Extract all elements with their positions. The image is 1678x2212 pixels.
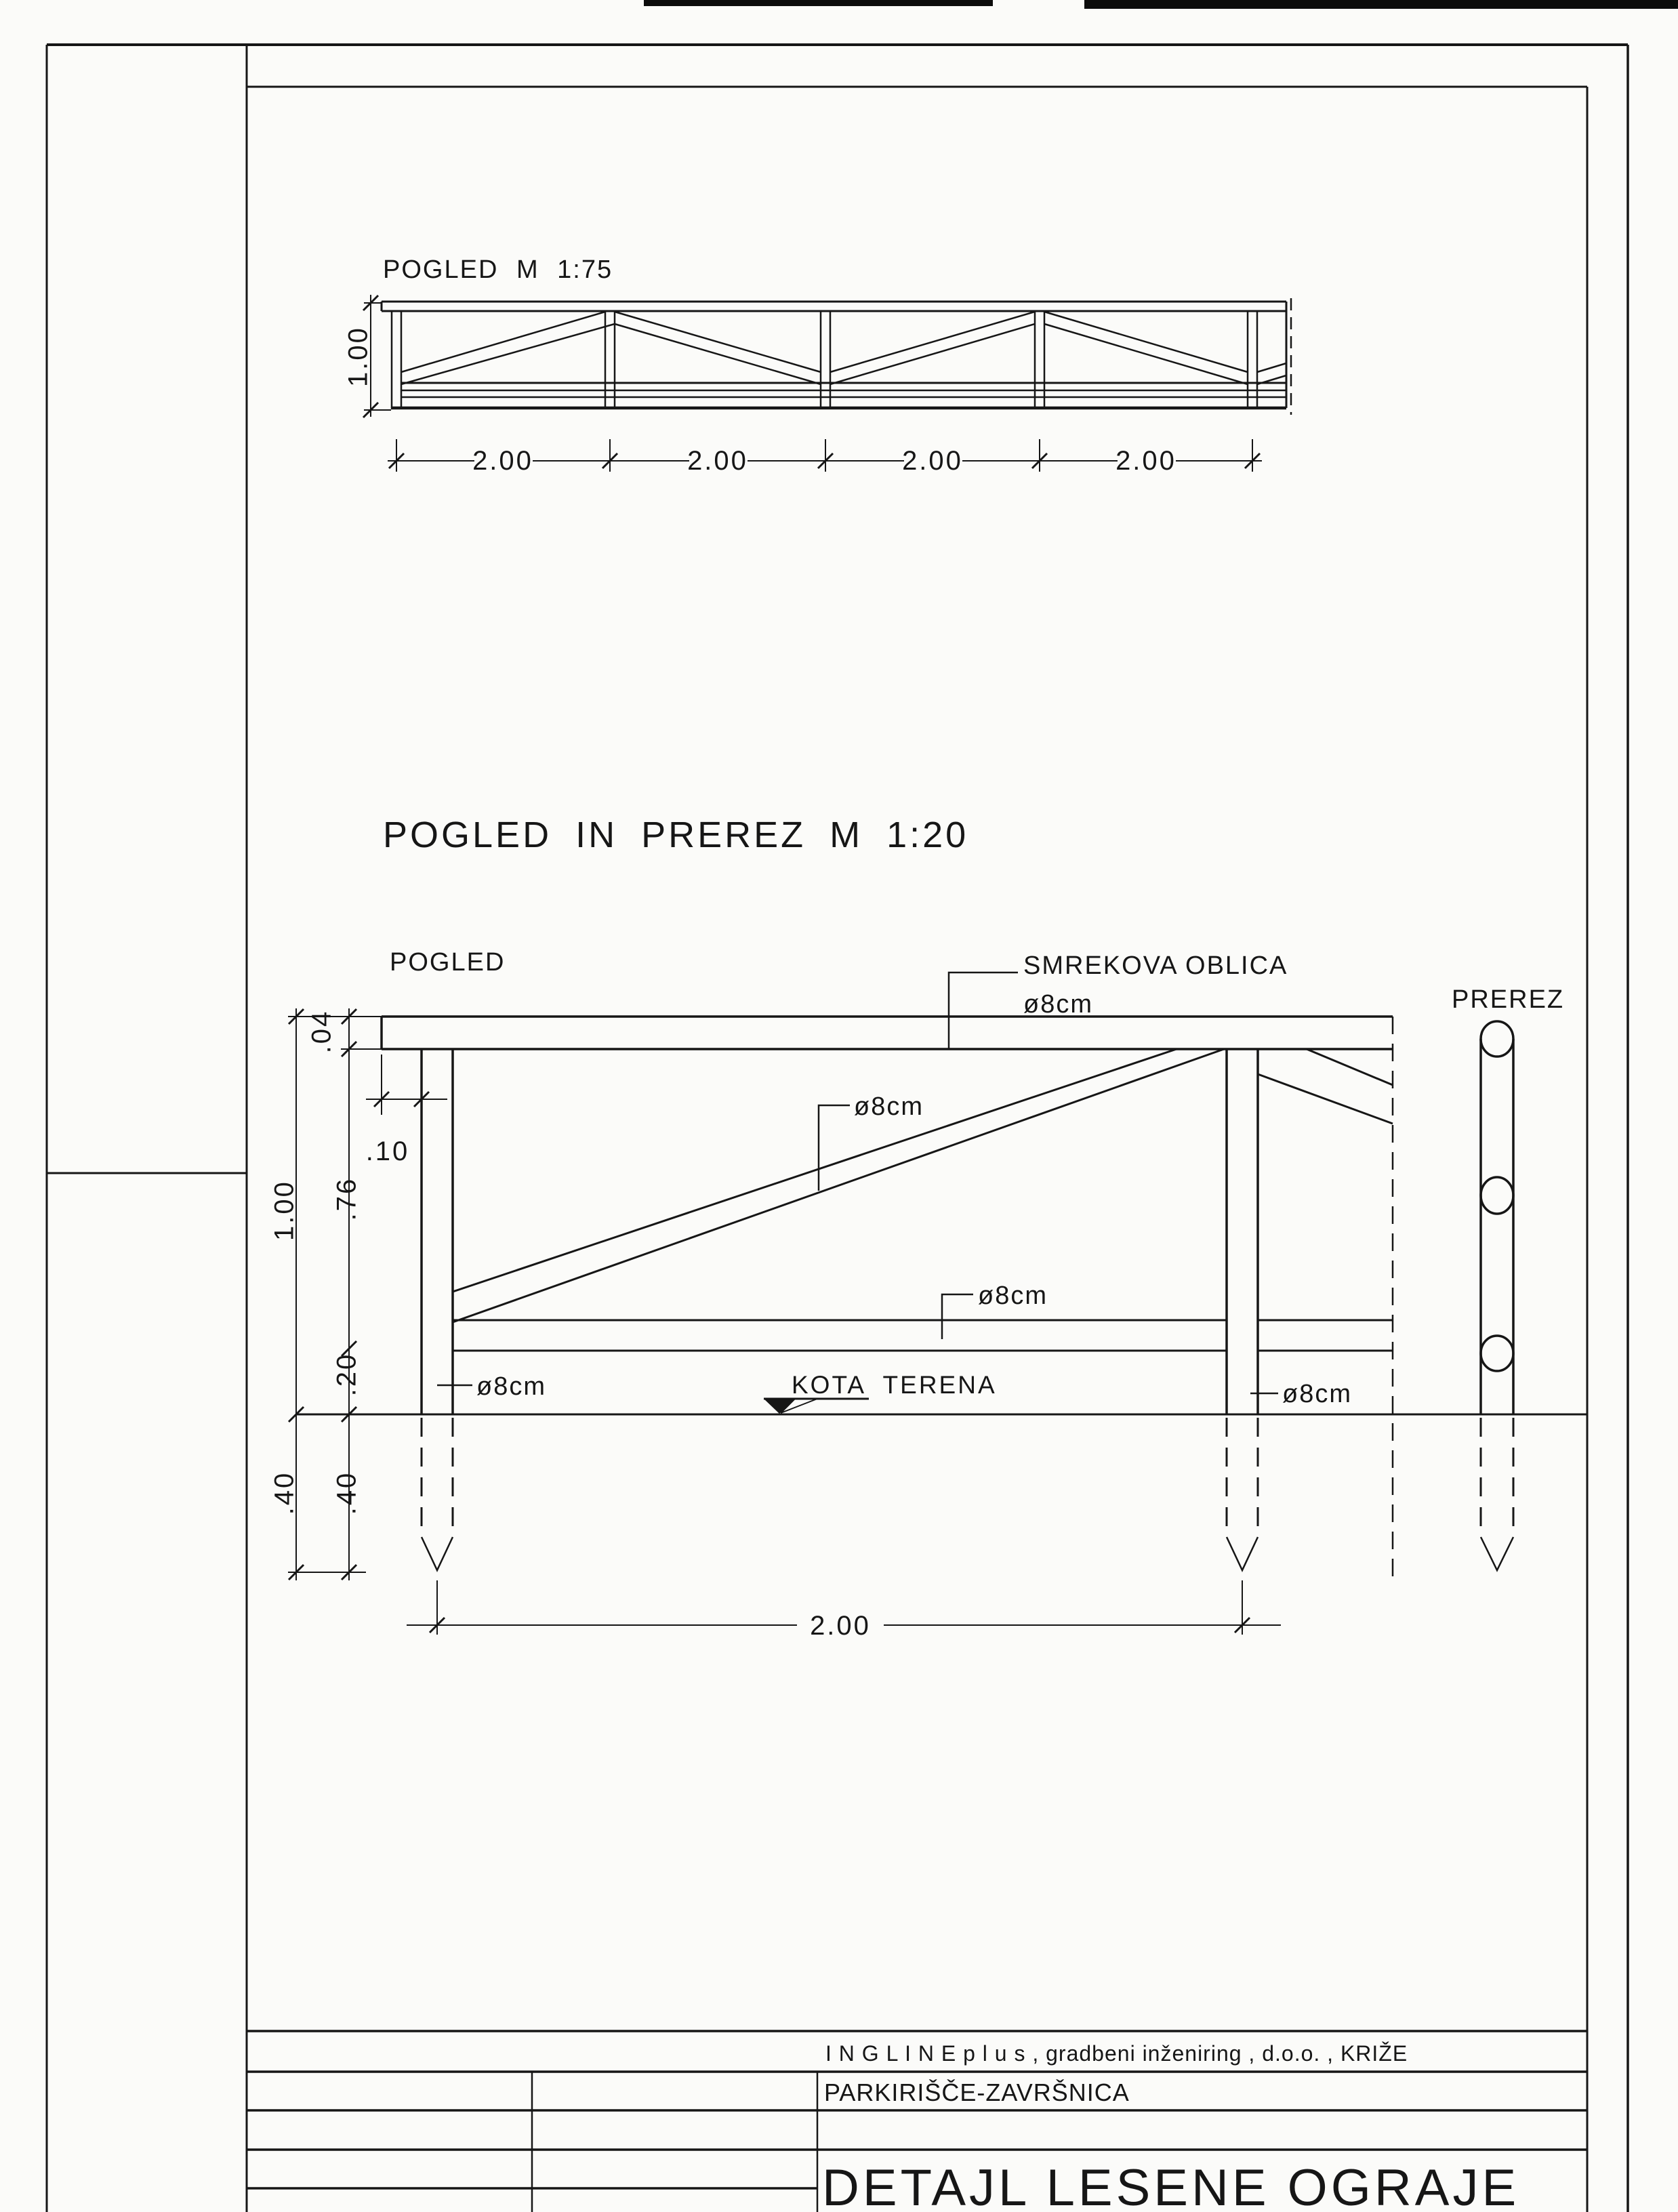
dv-post-left bbox=[422, 1049, 453, 1414]
tv-diagonal-braces bbox=[401, 312, 1286, 384]
level-marker-icon bbox=[764, 1399, 795, 1414]
tv-span-dim-label-1: 2.00 bbox=[472, 446, 533, 476]
lower-gap-dim: .20 bbox=[332, 1353, 362, 1397]
tv-span-dim-label-3: 2.00 bbox=[902, 446, 963, 476]
drawing-sheet: POGLED M 1:75 1.00 2.00 bbox=[0, 0, 1678, 2212]
prerez-label: PREREZ bbox=[1452, 985, 1564, 1014]
tv-post-1 bbox=[392, 311, 401, 408]
scan-artifacts bbox=[644, 0, 1678, 9]
tv-height-dim-label: 1.00 bbox=[344, 326, 373, 387]
embed-depth-inner-dim: .40 bbox=[332, 1471, 362, 1515]
embed-depth-outer-dim: .40 bbox=[270, 1471, 300, 1515]
post-offset-dim-label: .10 bbox=[366, 1136, 410, 1166]
material-diameter-label: ø8cm bbox=[1023, 990, 1093, 1019]
scan-artifact-bar bbox=[644, 0, 993, 6]
prerez-post-top-section bbox=[1481, 1021, 1513, 1057]
diagonal-diameter-label: ø8cm bbox=[854, 1092, 924, 1121]
top-view-title: POGLED M 1:75 bbox=[383, 255, 613, 284]
tv-post-4 bbox=[1035, 311, 1044, 408]
detail-title: POGLED IN PREREZ M 1:20 bbox=[383, 815, 968, 855]
project-name: PARKIRIŠČE-ZAVRŠNICA bbox=[824, 2078, 1130, 2106]
total-height-dim: 1.00 bbox=[270, 1180, 300, 1241]
ground-level-label: KOTA TERENA bbox=[792, 1371, 997, 1399]
dv-next-bay-diagonal bbox=[1258, 1049, 1393, 1124]
dv-post-right bbox=[1227, 1049, 1258, 1414]
scan-artifact-bar bbox=[1084, 0, 1678, 9]
drawing-title: DETAJL LESENE OGRAJE bbox=[822, 2159, 1519, 2212]
left-post-diameter-label: ø8cm bbox=[476, 1372, 546, 1401]
material-leader-line bbox=[949, 972, 1018, 1049]
dv-post-tips bbox=[422, 1537, 1513, 1570]
prerez-post bbox=[1481, 1039, 1513, 1414]
dv-lower-rail bbox=[453, 1320, 1393, 1351]
material-label: SMREKOVA OBLICA bbox=[1023, 951, 1288, 980]
lower-rail-diameter-label: ø8cm bbox=[978, 1282, 1048, 1310]
plank-thickness-dim: .04 bbox=[307, 1010, 337, 1054]
tv-span-dim-label-4: 2.00 bbox=[1116, 446, 1176, 476]
diagonal-diameter-leader bbox=[819, 1105, 850, 1191]
company-name: I N G L I N E p l u s , gradbeni inženir… bbox=[825, 2041, 1408, 2066]
lower-rail-diameter-leader bbox=[942, 1294, 973, 1339]
drawing-canvas: POGLED M 1:75 1.00 2.00 bbox=[0, 0, 1678, 2212]
tv-span-dim-label-2: 2.00 bbox=[687, 446, 748, 476]
dv-buried-posts-dashed bbox=[422, 1418, 1513, 1537]
dv-diagonal-brace bbox=[453, 1049, 1224, 1322]
top-view: POGLED M 1:75 1.00 2.00 bbox=[344, 255, 1291, 476]
right-post-diameter-label: ø8cm bbox=[1282, 1380, 1352, 1408]
dv-span-dim-label: 2.00 bbox=[810, 1611, 871, 1641]
pogled-label: POGLED bbox=[390, 948, 505, 977]
tv-post-5 bbox=[1248, 311, 1257, 408]
prerez-mid-rail-section bbox=[1481, 1177, 1513, 1214]
title-block-column-lines bbox=[532, 2072, 817, 2212]
upper-height-dim: .76 bbox=[332, 1177, 362, 1221]
tv-post-3 bbox=[821, 311, 830, 408]
prerez-lower-rail-section bbox=[1481, 1336, 1513, 1371]
detail-view: POGLED IN PREREZ M 1:20 POGLED PREREZ SM… bbox=[270, 815, 1587, 1643]
title-block: I N G L I N E p l u s , gradbeni inženir… bbox=[247, 2031, 1587, 2212]
